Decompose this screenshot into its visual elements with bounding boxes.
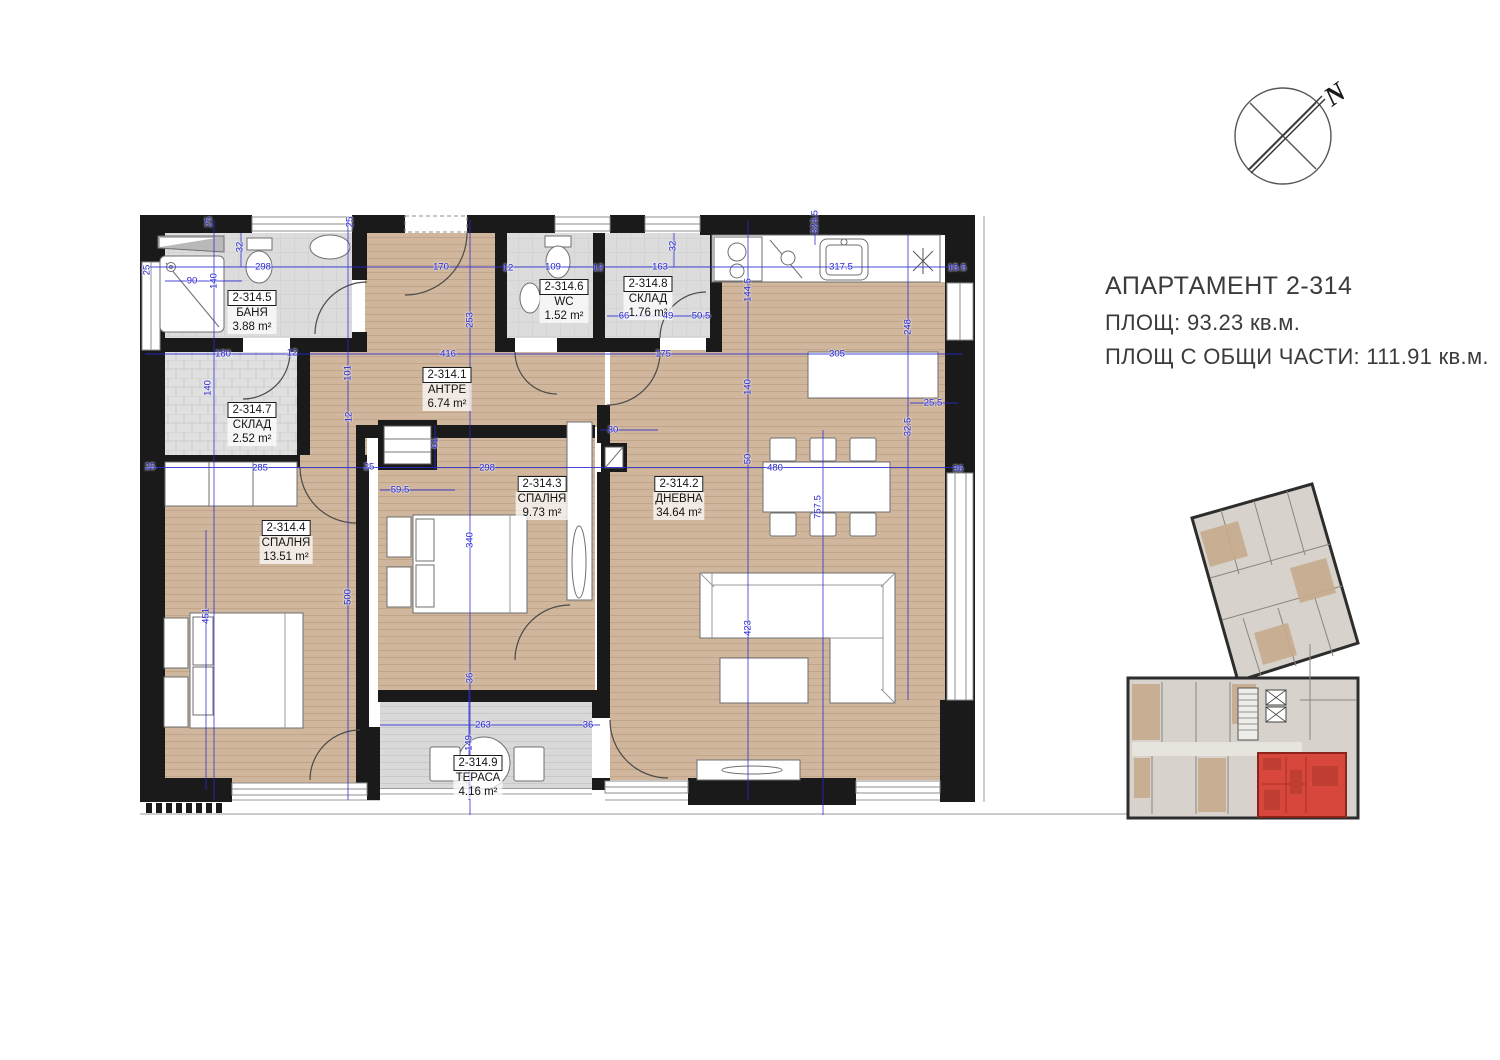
wardrobe xyxy=(165,462,297,506)
terrace-chair xyxy=(430,747,460,781)
mini-location-plan xyxy=(1128,484,1358,818)
floor-plan-page: N xyxy=(0,0,1500,1060)
nightstand xyxy=(387,567,411,607)
nightstand xyxy=(164,677,188,727)
terrace-table xyxy=(458,737,510,789)
highlighted-apartment xyxy=(1258,753,1346,817)
apartment-title: АПАРТАМЕНТ 2-314 xyxy=(1105,272,1489,301)
nightstand xyxy=(387,517,411,557)
nightstand xyxy=(164,618,188,668)
dining-table xyxy=(763,462,890,512)
wc-sink xyxy=(520,283,540,313)
entrance-door-recess xyxy=(405,216,467,232)
sink xyxy=(310,235,350,259)
stove xyxy=(728,243,746,261)
terrace-chair xyxy=(514,747,544,781)
compass: N xyxy=(1235,75,1353,184)
title-block: АПАРТАМЕНТ 2-314 ПЛОЩ: 93.23 кв.м. ПЛОЩ … xyxy=(1105,272,1489,378)
wc-toilet xyxy=(545,236,571,247)
toilet xyxy=(247,238,272,250)
floor-plan-drawing: N xyxy=(0,0,1500,1060)
common-area-line: ПЛОЩ С ОБЩИ ЧАСТИ: 111.91 кв.м. xyxy=(1105,344,1489,370)
hatch-marks xyxy=(146,803,222,813)
north-label: N xyxy=(1317,75,1352,112)
kitchen-island xyxy=(808,352,938,398)
mirror xyxy=(572,526,586,598)
area-line: ПЛОЩ: 93.23 кв.м. xyxy=(1105,310,1489,336)
coffee-table xyxy=(720,658,808,703)
